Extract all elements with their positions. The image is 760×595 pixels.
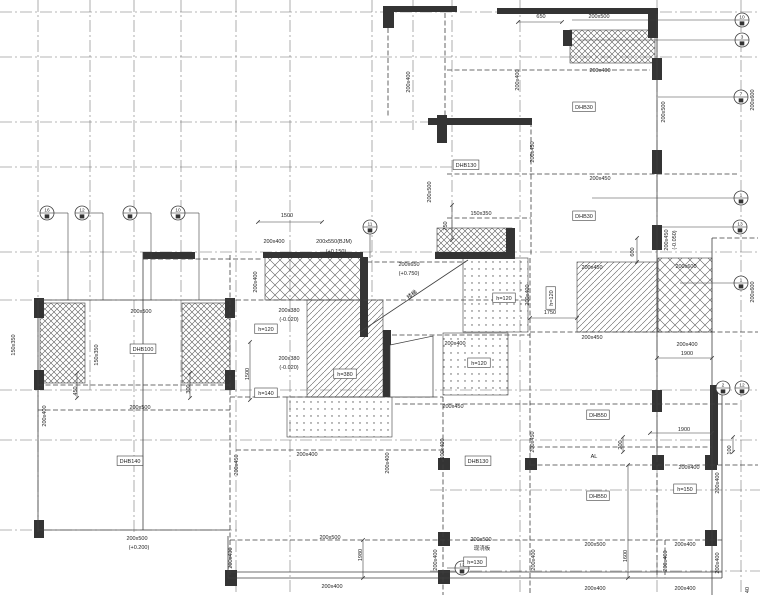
svg-text:200x450: 200x450 [530,431,536,452]
beam-label: (+0.750) [399,271,420,277]
svg-text:200x450: 200x450 [581,335,602,341]
beam-label: 200x500 [588,14,609,20]
wall-pier [705,530,717,546]
beam-label: 200x400 [321,584,342,590]
svg-text:200x400: 200x400 [676,342,697,348]
beam-label: 200x400 [525,284,531,305]
slab-or-height-label: DHB130 [465,456,491,466]
svg-text:12: 12 [739,383,745,389]
svg-text:200x450: 200x450 [581,265,602,271]
svg-text:10: 10 [739,15,745,21]
svg-text:1750: 1750 [544,310,556,316]
beam-label: 200x400 [715,472,721,493]
svg-text:200x500: 200x500 [129,405,150,411]
beam-label: 200x450 [442,404,463,410]
beam-label: 650 [536,14,545,20]
svg-text:200x400: 200x400 [663,550,669,571]
beam-label: (-0.020) [279,317,298,323]
svg-text:600: 600 [630,247,636,256]
beam-label: 200x400 [296,452,317,458]
slab-or-height-label: h=120 [255,324,278,334]
svg-text:h=380: h=380 [337,372,352,378]
svg-text:200x600: 200x600 [750,281,756,302]
beam-label: (-0.050) [672,230,678,249]
svg-text:h=130: h=130 [467,560,482,566]
beam-label: 200x450 [589,176,610,182]
wall-pier [383,6,457,12]
beam-label: 200x450 [581,335,602,341]
wall-pier [34,370,44,390]
grid-bubble: 10 [735,13,749,27]
stair-hatch [577,262,657,332]
svg-text:650: 650 [536,14,545,20]
svg-text:200x450: 200x450 [664,229,670,250]
beam-label: 200x400 [406,71,412,92]
svg-text:200x450: 200x450 [442,404,463,410]
wall-crosshatch [40,303,85,383]
svg-text:200x400: 200x400 [525,284,531,305]
svg-text:AL: AL [591,454,598,460]
svg-text:h=140: h=140 [258,391,273,397]
slab-or-height-label: h=120 [546,287,556,310]
beam-label: 750 [443,221,449,230]
beam-label: 200x400 [674,542,695,548]
slab-or-height-label: DHB130 [453,160,479,170]
beam-label: 200x500 [661,101,667,122]
svg-text:200x600: 200x600 [675,264,696,270]
grid-bubble: 12 [735,381,749,395]
svg-text:h=120: h=120 [549,290,555,305]
beam-label: 600 [630,247,636,256]
beam-label: 200x400 [385,452,391,473]
svg-text:200x500: 200x500 [130,309,151,315]
slab-or-height-label: DHB50 [587,410,610,420]
beam-label: 200x500 [126,536,147,542]
svg-text:200x400: 200x400 [589,68,610,74]
svg-text:200x400: 200x400 [515,69,521,90]
svg-text:200x500: 200x500 [427,181,433,202]
svg-text:150x350: 150x350 [11,334,17,355]
beam-label: 150x350 [11,334,17,355]
svg-text:12: 12 [79,208,85,214]
beam-label: 200x400 [678,465,699,471]
beam-label: 1600 [623,550,629,562]
stair-hatch [307,300,383,397]
beam-label: 1500 [281,213,293,219]
wall-pier [360,257,368,337]
svg-text:h=120: h=120 [258,327,273,333]
beam-label: 200x400 [674,586,695,592]
drawing-sheet: 1612810111037113121212650200x500200x4002… [0,0,760,595]
grid-bubble: 16 [40,206,54,220]
svg-text:200x400: 200x400 [715,472,721,493]
beam-label: 200x450 [581,265,602,271]
svg-text:1500: 1500 [281,213,293,219]
svg-text:DHB50: DHB50 [589,494,607,500]
wall-pier [652,455,664,470]
beam-label: 200x400 [42,405,48,426]
beam-label: 200x450 [530,431,536,452]
svg-text:200x500: 200x500 [470,537,491,543]
svg-text:200x380: 200x380 [278,308,299,314]
beam-label: 200x500 [129,405,150,411]
svg-text:200x400: 200x400 [674,542,695,548]
svg-text:150x350: 150x350 [94,344,100,365]
grid-bubble: 3 [735,33,749,47]
beam-label: 200x380 [278,308,299,314]
svg-text:(+0.150): (+0.150) [326,249,347,255]
svg-text:DHB100: DHB100 [133,347,154,353]
svg-text:3: 3 [741,35,744,41]
svg-text:1900: 1900 [681,351,693,357]
svg-text:DHB30: DHB30 [575,105,593,111]
svg-text:(+0.750): (+0.750) [399,271,420,277]
beam-label: 200x450 [664,229,670,250]
svg-text:200x400: 200x400 [253,271,259,292]
beam-label: 200x450 [530,141,536,162]
beam-label: 200x400 [515,69,521,90]
svg-text:2: 2 [722,383,725,389]
svg-text:200x500: 200x500 [584,542,605,548]
beam-label: 1900 [681,351,693,357]
svg-text:200x500: 200x500 [661,101,667,122]
wall-pier [34,520,44,538]
beam-label: 200x550(BJM) [316,239,352,245]
beam-label: 150x350 [94,344,100,365]
svg-text:8: 8 [129,208,132,214]
svg-text:200x450: 200x450 [234,454,240,475]
svg-text:1600: 1600 [623,550,629,562]
beam-label: 200x400 [584,586,605,592]
svg-text:11: 11 [368,222,373,228]
svg-text:200x400: 200x400 [321,584,342,590]
grid-bubble: 1 [734,191,748,205]
grid-bubble: 8 [123,206,137,220]
svg-text:DHB130: DHB130 [468,459,489,465]
svg-text:1980: 1980 [358,549,364,561]
beam-label: 200x400 [440,438,446,459]
svg-text:200x400: 200x400 [584,586,605,592]
slab-or-height-label: h=120 [468,358,491,368]
svg-text:200x400: 200x400 [228,547,234,568]
svg-text:(-0.020): (-0.020) [279,365,298,371]
svg-text:200x400: 200x400 [678,465,699,471]
beam-label: 200 [618,440,624,449]
beam-label: 200x500 [319,535,340,541]
svg-text:7: 7 [740,92,743,98]
svg-text:200x400: 200x400 [531,549,537,570]
svg-text:200x400: 200x400 [296,452,317,458]
beam-label: 1750 [544,310,556,316]
svg-text:200x500: 200x500 [126,536,147,542]
floor-plan-drawing: 1612810111037113121212650200x500200x4002… [0,0,760,595]
svg-text:(-0.020): (-0.020) [279,317,298,323]
svg-text:DHB130: DHB130 [456,163,477,169]
beam-label: 200x500 [470,537,491,543]
beam-label: 200x450 [234,454,240,475]
svg-text:200x400: 200x400 [263,239,284,245]
svg-text:10: 10 [175,208,181,214]
svg-text:200x600: 200x600 [750,89,756,110]
slab-hatch [265,257,363,300]
svg-text:40: 40 [745,587,751,593]
grid-bubble: 13 [733,220,747,234]
svg-text:100: 100 [727,445,733,454]
stair-flight-outline [390,336,433,397]
beam-label: 200x600 [675,264,696,270]
svg-text:DHB140: DHB140 [120,459,141,465]
wall-pier [34,298,44,318]
svg-text:200x400: 200x400 [444,341,465,347]
slab-or-height-label: DHB30 [573,211,596,221]
svg-text:200x500: 200x500 [588,14,609,20]
beam-label: 40 [745,587,751,593]
slab-or-height-label: h=120 [493,293,516,303]
slab-or-height-label: h=380 [334,369,357,379]
beam-label: 200x500 [584,542,605,548]
svg-text:h=120: h=120 [471,361,486,367]
beam-label: 150x350 [470,211,491,217]
beam-label: 200x400 [589,68,610,74]
svg-text:DHB50: DHB50 [589,413,607,419]
slab-or-height-label: DHB50 [587,491,610,501]
svg-text:200: 200 [618,440,624,449]
svg-text:200x450: 200x450 [530,141,536,162]
slab-or-height-label: h=140 [255,388,278,398]
beam-label: (+0.200) [129,545,150,551]
svg-text:DHB30: DHB30 [575,214,593,220]
beam-label: 200x600 [750,281,756,302]
svg-text:200x400: 200x400 [715,552,721,573]
svg-text:200x400: 200x400 [674,586,695,592]
svg-text:200x450: 200x450 [589,176,610,182]
beam-label: 200x500 [130,309,151,315]
wall-pier [438,532,450,546]
slab-or-height-label: DHB100 [130,344,156,354]
beam-label: 200x400 [663,550,669,571]
svg-text:750: 750 [443,221,449,230]
beam-label: 200x600 [750,89,756,110]
wall-pier [497,8,658,14]
beam-label: 200x650 [398,262,419,268]
svg-text:13: 13 [737,222,743,228]
svg-text:200x380: 200x380 [278,356,299,362]
svg-text:1: 1 [740,193,743,199]
beam-label: 450 [73,386,79,395]
svg-text:200x400: 200x400 [440,438,446,459]
beam-label: 现浇板 [474,544,491,552]
svg-text:450: 450 [73,386,79,395]
svg-text:16: 16 [44,208,50,214]
svg-text:200x400: 200x400 [406,71,412,92]
svg-text:(-0.050): (-0.050) [672,230,678,249]
svg-text:150x350: 150x350 [470,211,491,217]
beam-label: (-0.020) [279,365,298,371]
beam-label: 200x400 [263,239,284,245]
grid-bubble: 1 [734,276,748,290]
wall-pier [648,8,658,38]
wall-pier [435,252,515,259]
wall-pier [263,252,363,258]
svg-text:h=120: h=120 [496,296,511,302]
grid-bubble: 12 [75,206,89,220]
beam-label: AL [591,454,598,460]
grid-bubble: 2 [716,381,730,395]
slab-or-height-label: h=130 [464,557,487,567]
svg-text:200x400: 200x400 [433,549,439,570]
beam-label: 200x400 [228,547,234,568]
beam-label: 100 [727,445,733,454]
slab-or-height-label: DHB30 [573,102,596,112]
svg-text:200x650: 200x650 [398,262,419,268]
beam-label: 200x400 [531,549,537,570]
svg-text:1500: 1500 [245,368,251,380]
svg-text:1: 1 [740,278,743,284]
beam-label: 1980 [358,549,364,561]
beam-label: 200x500 [427,181,433,202]
svg-text:200x400: 200x400 [42,405,48,426]
beam-label: 200x400 [253,271,259,292]
wall-crosshatch [570,30,655,63]
wall-pier [525,458,537,470]
svg-text:200x500: 200x500 [319,535,340,541]
grid-bubble: 7 [734,90,748,104]
wall-pier [428,118,532,125]
slab-hatch [287,397,392,437]
svg-text:(+0.200): (+0.200) [129,545,150,551]
slab-or-height-label: h=150 [674,484,697,494]
wall-pier [563,30,572,46]
beam-label: 300 [186,384,192,393]
svg-text:200x400: 200x400 [385,452,391,473]
beam-label: 200x400 [676,342,697,348]
beam-label: (+0.150) [326,249,347,255]
wall-pier [710,385,718,465]
beam-label: 200x400 [715,552,721,573]
svg-text:1900: 1900 [678,427,690,433]
wall-pier [383,6,394,28]
grid-bubble: 10 [171,206,185,220]
beam-label: 200x400 [433,549,439,570]
svg-text:现浇板: 现浇板 [474,544,491,552]
beam-label: 200x400 [444,341,465,347]
svg-text:h=150: h=150 [677,487,692,493]
beam-label: 1500 [245,368,251,380]
svg-text:300: 300 [186,384,192,393]
beam-label: 200x380 [278,356,299,362]
svg-text:200x550(BJM): 200x550(BJM) [316,239,352,245]
beam-label: 1900 [678,427,690,433]
slab-or-height-label: DHB140 [117,456,143,466]
grid-bubble: 11 [363,220,377,234]
wall-crosshatch [182,303,230,383]
